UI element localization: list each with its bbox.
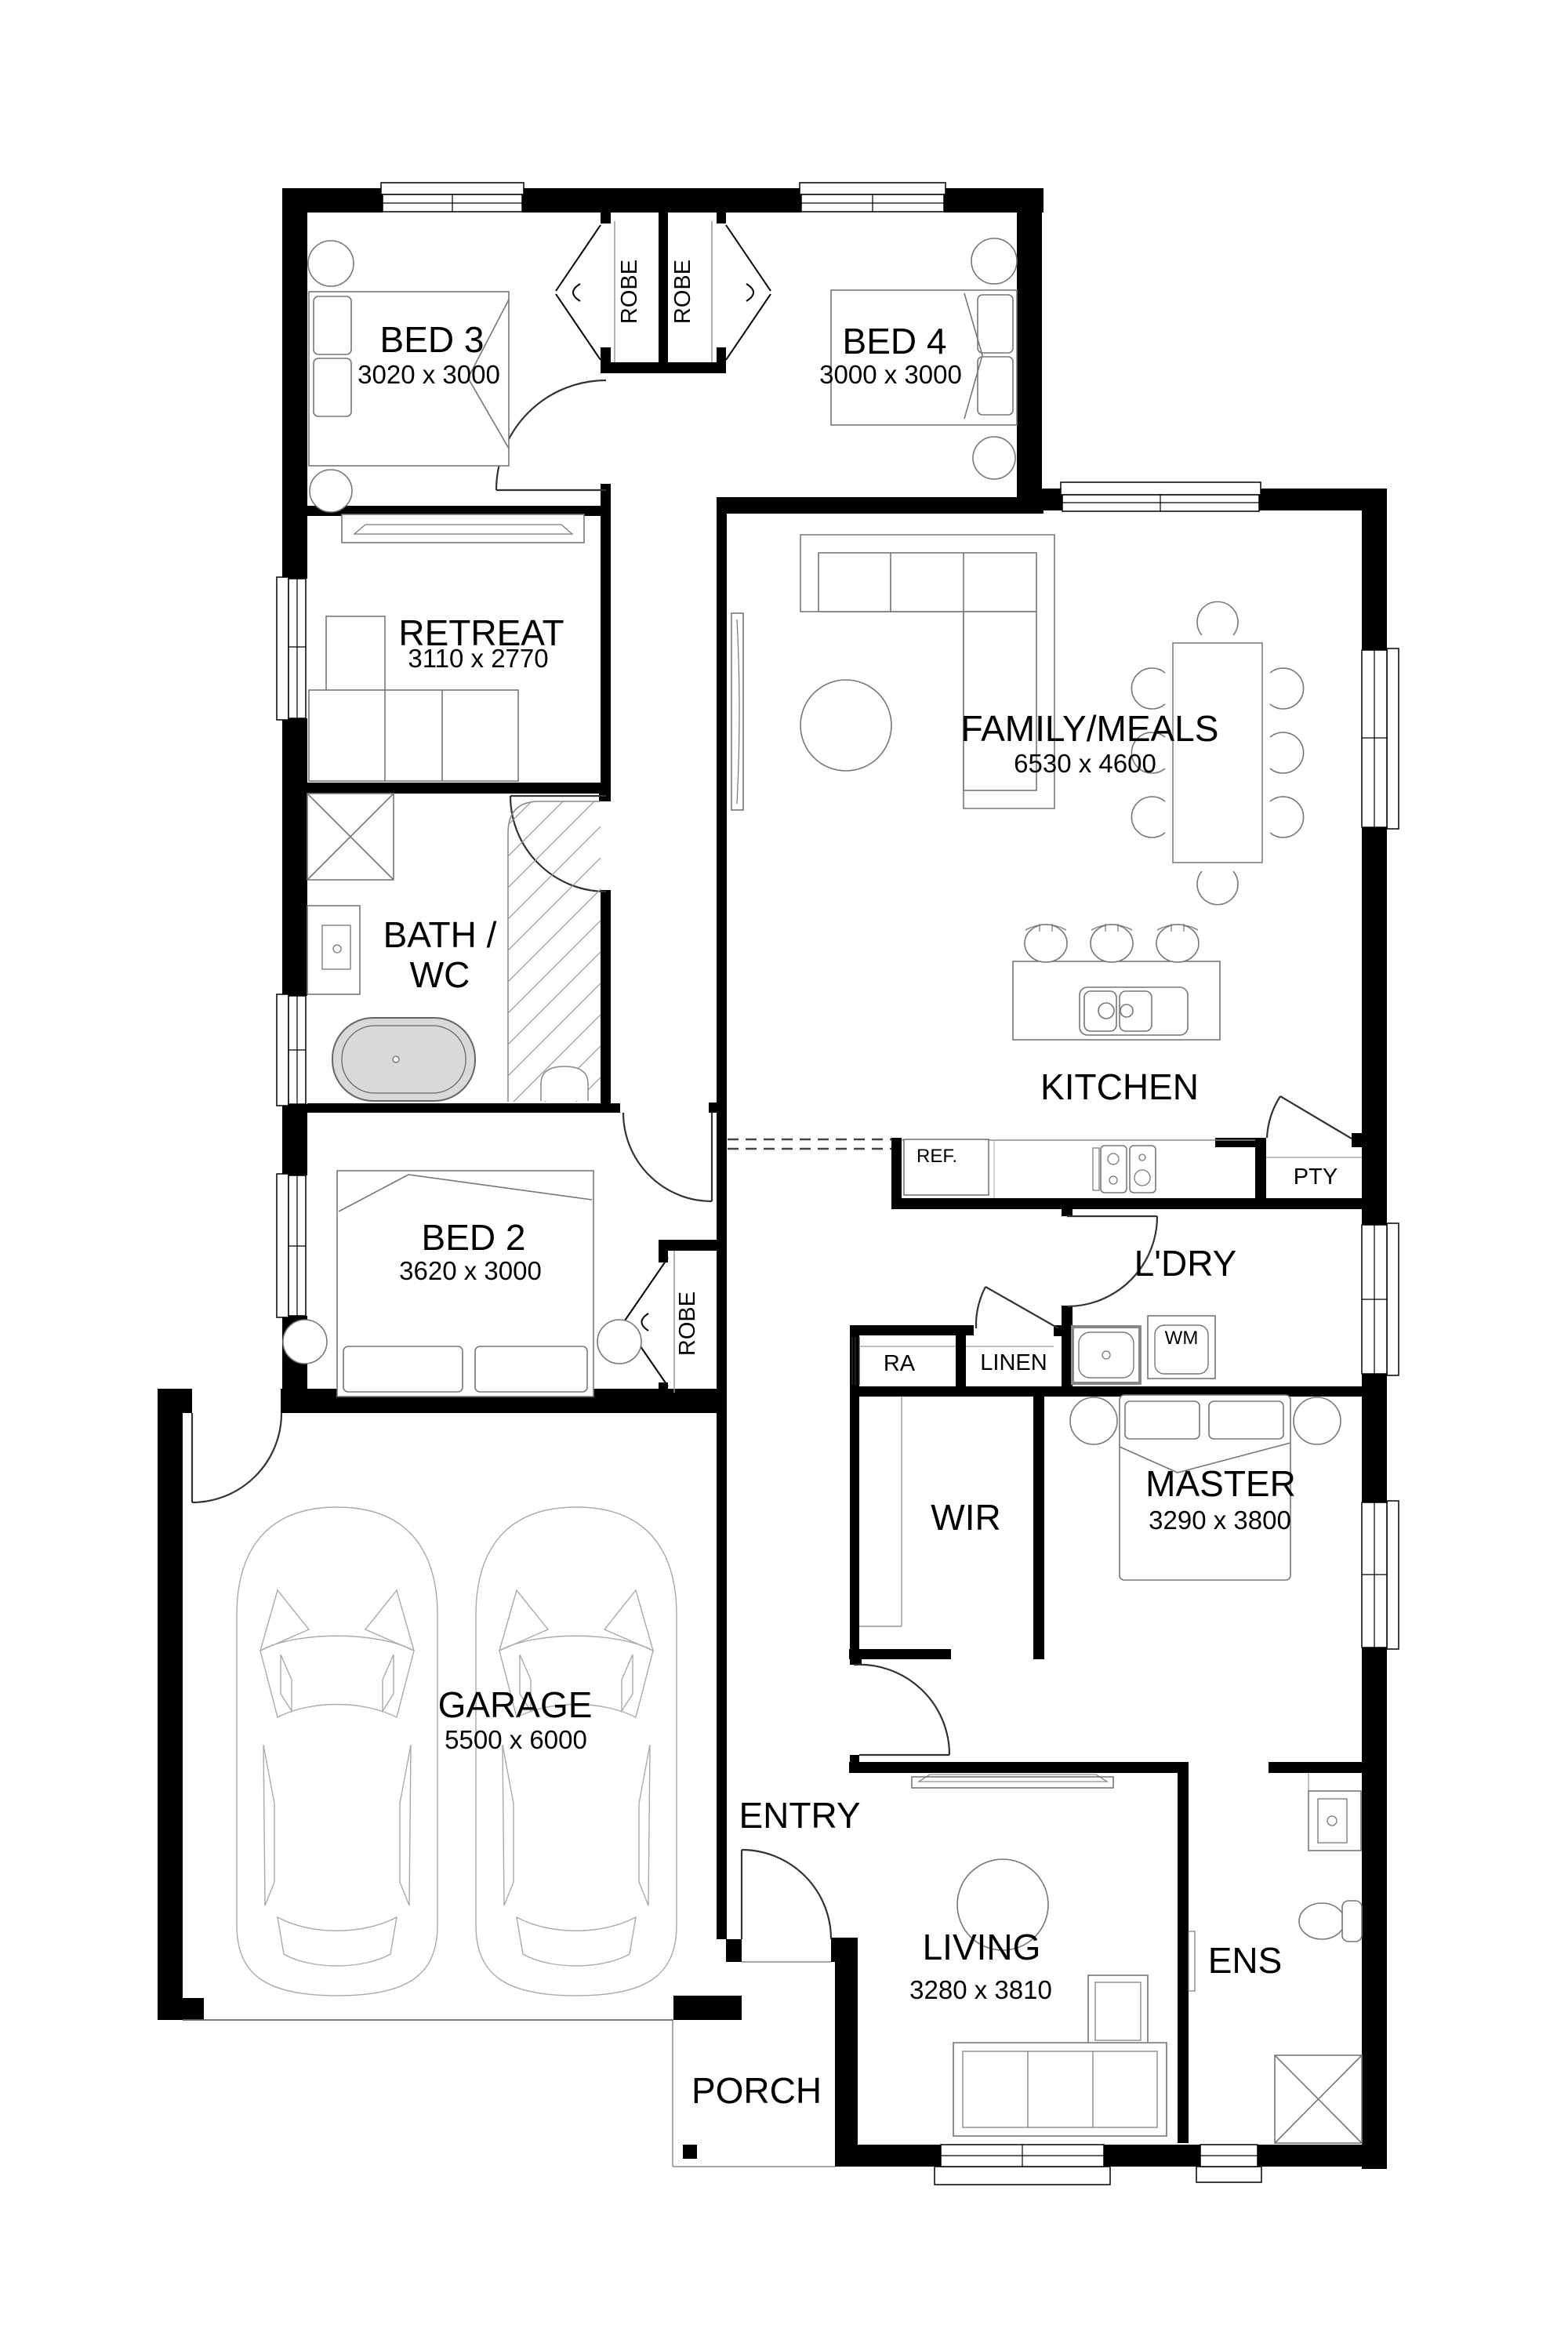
svg-text:BED 4: BED 4 [843,321,947,361]
svg-text:L'DRY: L'DRY [1134,1243,1237,1284]
svg-text:FAMILY/MEALS: FAMILY/MEALS [961,708,1219,749]
svg-text:ENTRY: ENTRY [739,1795,860,1836]
svg-text:3280 x 3810: 3280 x 3810 [909,1975,1052,2004]
svg-text:MASTER: MASTER [1145,1463,1296,1504]
svg-text:REF.: REF. [916,1146,957,1167]
svg-text:WIR: WIR [931,1497,1000,1538]
svg-text:PTY: PTY [1294,1164,1338,1190]
svg-text:5500 x 6000: 5500 x 6000 [445,1725,587,1754]
svg-text:3620 x 3000: 3620 x 3000 [399,1256,542,1285]
svg-text:3000 x 3000: 3000 x 3000 [819,360,962,389]
svg-text:3110 x 2770: 3110 x 2770 [408,644,548,673]
svg-text:3290 x 3800: 3290 x 3800 [1149,1506,1291,1535]
svg-text:3020 x 3000: 3020 x 3000 [358,360,500,389]
svg-text:WM: WM [1165,1328,1199,1349]
svg-text:ROBE: ROBE [670,260,695,324]
svg-text:BED 2: BED 2 [422,1217,526,1258]
svg-text:LIVING: LIVING [923,1927,1041,1967]
svg-text:BED 3: BED 3 [380,319,485,360]
svg-text:LINEN: LINEN [980,1350,1047,1375]
svg-text:BATH /: BATH / [383,914,497,955]
svg-text:WC: WC [410,954,470,995]
svg-text:6530 x 4600: 6530 x 4600 [1014,749,1156,778]
svg-text:PORCH: PORCH [691,2070,822,2111]
svg-text:ROBE: ROBE [675,1291,700,1356]
svg-text:KITCHEN: KITCHEN [1040,1066,1199,1107]
svg-text:ENS: ENS [1208,1940,1283,1981]
svg-text:GARAGE: GARAGE [438,1684,593,1725]
svg-text:RA: RA [884,1351,916,1376]
svg-text:ROBE: ROBE [617,260,642,324]
